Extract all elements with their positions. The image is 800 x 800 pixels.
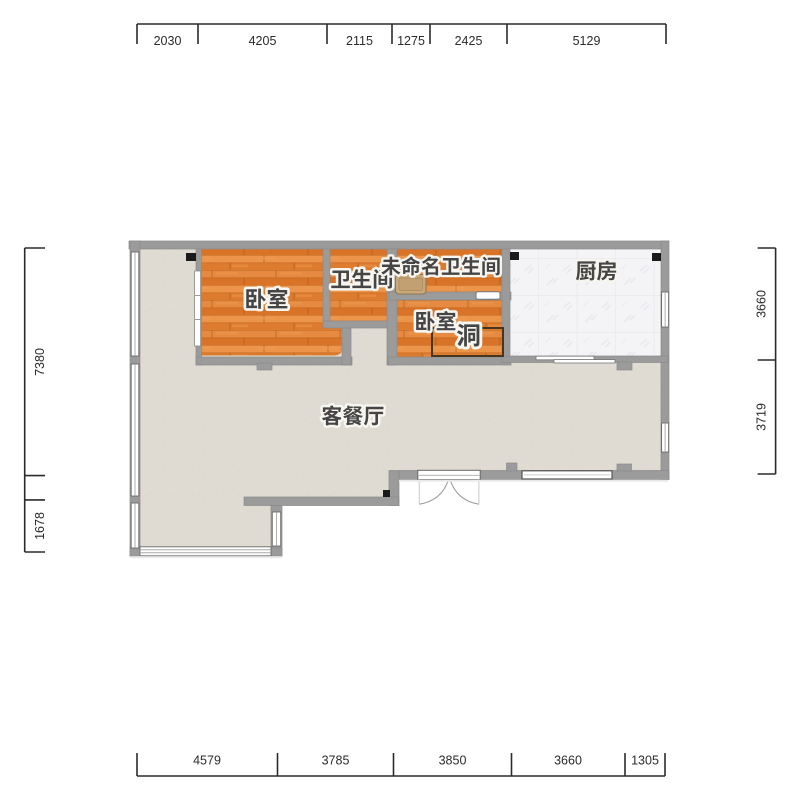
svg-text:7380: 7380 <box>33 348 47 376</box>
svg-text:5129: 5129 <box>573 34 601 48</box>
svg-text:3719: 3719 <box>755 403 769 431</box>
svg-text:2425: 2425 <box>455 34 483 48</box>
svg-text:4579: 4579 <box>193 754 221 768</box>
svg-text:1678: 1678 <box>33 512 47 540</box>
svg-text:3660: 3660 <box>554 754 582 768</box>
svg-text:3850: 3850 <box>439 754 467 768</box>
svg-text:2115: 2115 <box>346 34 373 48</box>
svg-text:1275: 1275 <box>397 34 425 48</box>
svg-text:1305: 1305 <box>631 754 659 768</box>
svg-text:3660: 3660 <box>755 290 769 318</box>
svg-text:2030: 2030 <box>154 34 182 48</box>
svg-text:3785: 3785 <box>322 754 350 768</box>
svg-text:4205: 4205 <box>249 34 277 48</box>
